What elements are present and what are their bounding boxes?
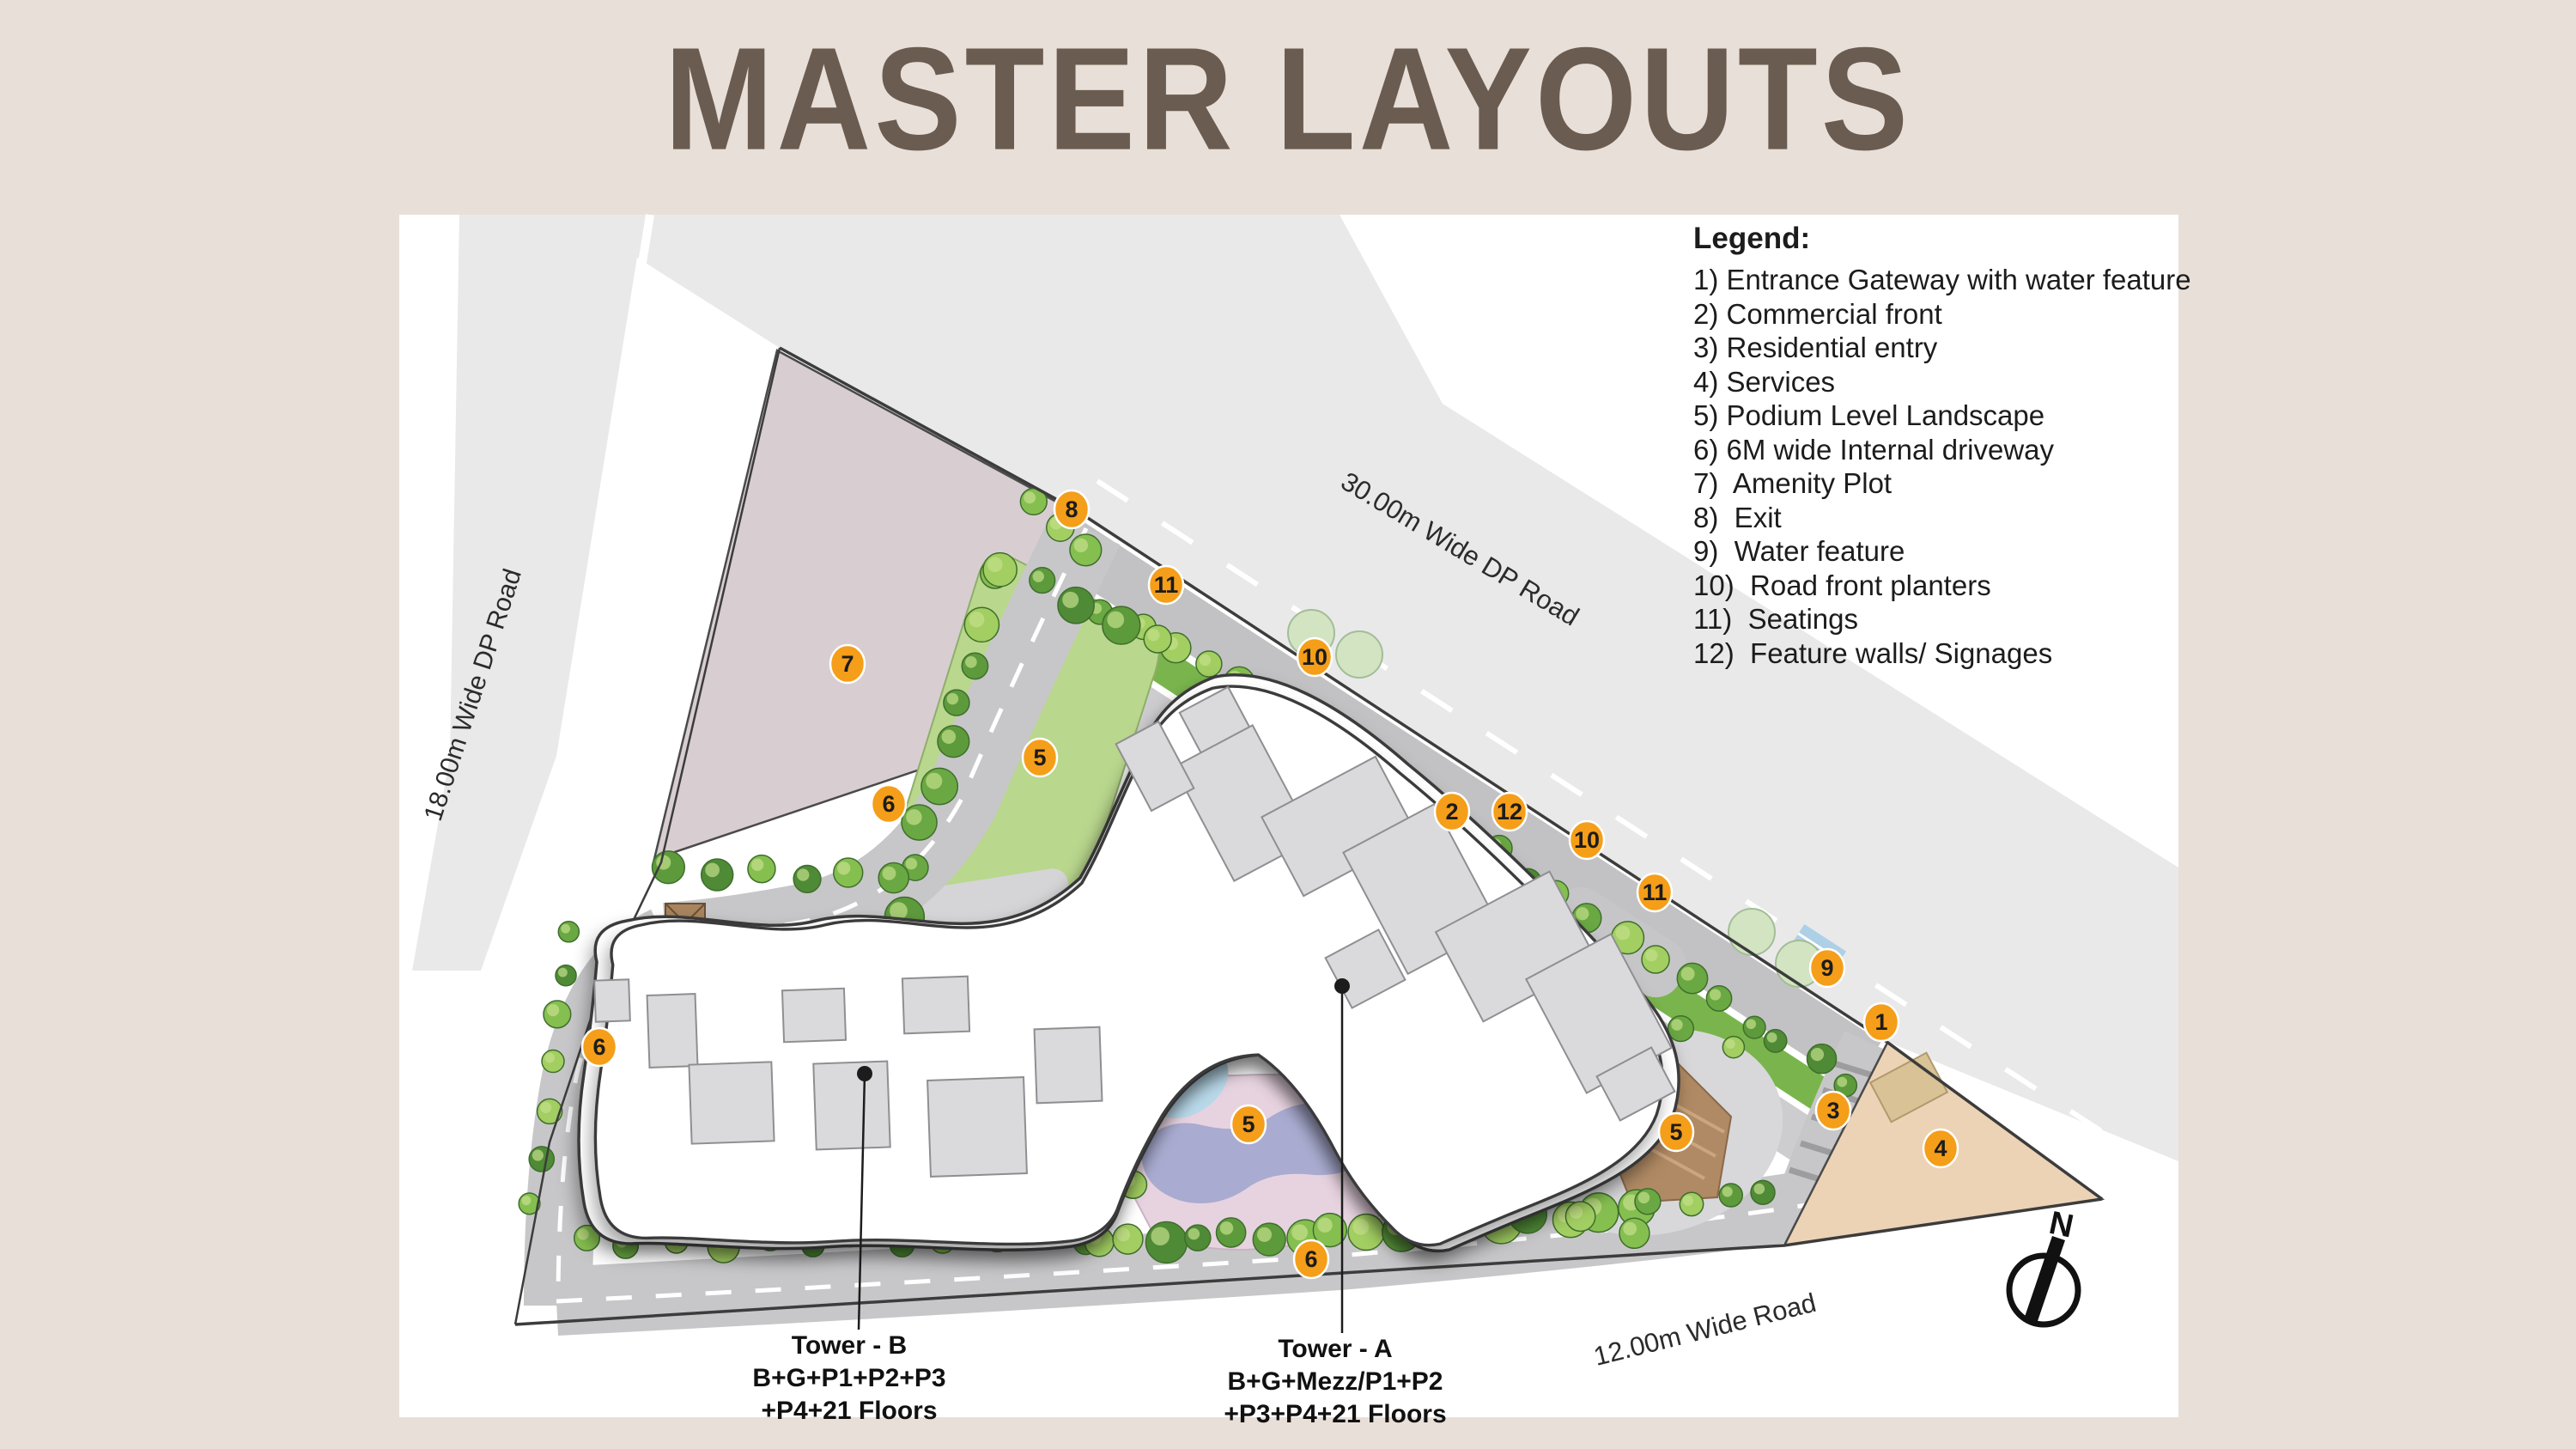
building-wing bbox=[927, 1077, 1027, 1177]
plan-marker-number: 11 bbox=[1643, 880, 1668, 905]
tower-a-floors-1: B+G+Mezz/P1+P2 bbox=[1189, 1366, 1481, 1398]
tower-a-name: Tower - A bbox=[1189, 1333, 1481, 1366]
legend-item-11: 11) Seatings bbox=[1693, 602, 2191, 636]
tree bbox=[902, 805, 937, 840]
tower-a-label: Tower - A B+G+Mezz/P1+P2 +P3+P4+21 Floor… bbox=[1189, 1333, 1481, 1431]
plan-marker-number: 5 bbox=[1033, 745, 1046, 770]
plan-marker-5: 5 bbox=[1023, 739, 1057, 776]
tree bbox=[1565, 1202, 1595, 1231]
tower-b-name: Tower - B bbox=[712, 1330, 987, 1362]
legend-item-9: 9) Water feature bbox=[1693, 534, 2191, 569]
tower-a-floors-2: +P3+P4+21 Floors bbox=[1189, 1398, 1481, 1431]
plan-marker-number: 5 bbox=[1242, 1111, 1255, 1137]
tree bbox=[944, 690, 969, 715]
plan-marker-6: 6 bbox=[872, 785, 906, 823]
building-wing bbox=[813, 1062, 890, 1150]
legend-item-2: 2) Commercial front bbox=[1693, 297, 2191, 332]
tree bbox=[921, 768, 957, 804]
plan-marker-number: 12 bbox=[1497, 799, 1522, 825]
tree bbox=[1751, 1180, 1775, 1204]
building-wing bbox=[594, 979, 630, 1021]
plan-marker-number: 10 bbox=[1302, 644, 1327, 670]
plan-marker-3: 3 bbox=[1816, 1092, 1850, 1129]
plan-marker-10: 10 bbox=[1570, 821, 1604, 859]
plan-marker-number: 11 bbox=[1154, 572, 1179, 598]
tree bbox=[1070, 534, 1102, 566]
tree bbox=[1145, 1221, 1187, 1263]
site-plan-map: 30.00m Wide DP Road 18.00m Wide DP Road … bbox=[0, 0, 2576, 1449]
tree bbox=[834, 858, 863, 887]
plan-marker-number: 6 bbox=[1304, 1246, 1317, 1272]
tree bbox=[702, 859, 733, 891]
plan-marker-6: 6 bbox=[582, 1028, 617, 1066]
legend-items: 1) Entrance Gateway with water feature2)… bbox=[1693, 263, 2191, 670]
tree bbox=[1764, 1030, 1786, 1052]
building-wing bbox=[1035, 1027, 1103, 1104]
ornamental-tree bbox=[1336, 631, 1382, 678]
plan-marker-number: 10 bbox=[1574, 827, 1600, 853]
tree bbox=[983, 553, 1017, 587]
tree bbox=[652, 851, 684, 884]
page-title: MASTER LAYOUTS bbox=[0, 15, 2576, 184]
plan-marker-11: 11 bbox=[1149, 566, 1183, 604]
tree bbox=[1253, 1223, 1285, 1256]
legend-item-3: 3) Residential entry bbox=[1693, 331, 2191, 365]
legend-item-1: 1) Entrance Gateway with water feature bbox=[1693, 263, 2191, 297]
tree bbox=[1185, 1225, 1211, 1251]
tree bbox=[1642, 946, 1669, 973]
legend-heading: Legend: bbox=[1693, 222, 2191, 256]
tree bbox=[542, 1050, 564, 1073]
plan-marker-number: 6 bbox=[592, 1034, 605, 1060]
plan-marker-7: 7 bbox=[830, 645, 865, 683]
tree bbox=[1144, 625, 1171, 653]
tree bbox=[1619, 1218, 1649, 1248]
tree bbox=[964, 607, 999, 642]
tree bbox=[1719, 1184, 1742, 1207]
tree bbox=[1196, 651, 1222, 677]
tree bbox=[1103, 606, 1140, 644]
tree bbox=[878, 863, 908, 893]
plan-marker-4: 4 bbox=[1923, 1129, 1958, 1167]
building-wing bbox=[902, 977, 969, 1034]
tower-b-label: Tower - B B+G+P1+P2+P3 +P4+21 Floors bbox=[712, 1330, 987, 1428]
tower-b-floors-1: B+G+P1+P2+P3 bbox=[712, 1362, 987, 1395]
plan-marker-number: 8 bbox=[1065, 496, 1078, 522]
tree bbox=[1677, 963, 1707, 993]
legend-item-7: 7) Amenity Plot bbox=[1693, 466, 2191, 501]
tree bbox=[938, 726, 969, 758]
plan-marker-5: 5 bbox=[1659, 1113, 1693, 1151]
building-wing bbox=[689, 1062, 774, 1143]
tower-b-floors-2: +P4+21 Floors bbox=[712, 1395, 987, 1428]
ornamental-tree bbox=[1728, 909, 1775, 955]
plan-marker-8: 8 bbox=[1054, 490, 1089, 528]
plan-marker-2: 2 bbox=[1435, 793, 1469, 831]
legend-item-5: 5) Podium Level Landscape bbox=[1693, 399, 2191, 433]
master-layout-page: { "title": "MASTER LAYOUTS", "legend": {… bbox=[0, 0, 2576, 1449]
legend-item-4: 4) Services bbox=[1693, 365, 2191, 399]
plan-marker-number: 5 bbox=[1669, 1119, 1682, 1145]
plan-marker-number: 2 bbox=[1445, 799, 1458, 825]
building-wing bbox=[782, 989, 846, 1042]
plan-marker-11: 11 bbox=[1637, 874, 1672, 911]
plan-marker-number: 3 bbox=[1826, 1098, 1839, 1123]
legend: Legend: 1) Entrance Gateway with water f… bbox=[1693, 222, 2191, 670]
building-wing bbox=[647, 994, 698, 1068]
plan-marker-number: 7 bbox=[841, 651, 854, 677]
plan-marker-number: 9 bbox=[1820, 955, 1833, 981]
legend-item-12: 12) Feature walls/ Signages bbox=[1693, 636, 2191, 671]
tree bbox=[748, 855, 775, 883]
tree bbox=[556, 965, 576, 986]
plan-marker-5: 5 bbox=[1231, 1105, 1266, 1143]
tree bbox=[1217, 1218, 1246, 1247]
tree bbox=[1706, 986, 1731, 1011]
legend-item-6: 6) 6M wide Internal driveway bbox=[1693, 433, 2191, 467]
tree bbox=[538, 1099, 562, 1123]
tree bbox=[529, 1147, 554, 1172]
tree bbox=[1668, 1016, 1694, 1042]
plan-marker-1: 1 bbox=[1864, 1003, 1899, 1041]
tree bbox=[1635, 1189, 1661, 1215]
tree bbox=[1058, 588, 1094, 624]
plan-marker-10: 10 bbox=[1297, 638, 1332, 676]
plan-marker-6: 6 bbox=[1294, 1240, 1328, 1278]
tree bbox=[793, 865, 821, 892]
tree bbox=[1348, 1215, 1384, 1251]
legend-item-10: 10) Road front planters bbox=[1693, 569, 2191, 603]
plan-marker-number: 4 bbox=[1934, 1135, 1947, 1161]
tree bbox=[1680, 1192, 1703, 1215]
tree bbox=[558, 922, 579, 942]
tree bbox=[544, 1001, 571, 1028]
tree bbox=[1030, 568, 1055, 594]
legend-item-8: 8) Exit bbox=[1693, 501, 2191, 535]
tree bbox=[962, 653, 987, 679]
tree bbox=[1743, 1016, 1765, 1038]
plan-marker-9: 9 bbox=[1810, 949, 1844, 987]
plan-marker-number: 1 bbox=[1874, 1009, 1887, 1035]
tree bbox=[1113, 1224, 1143, 1254]
tree bbox=[1722, 1037, 1744, 1058]
plan-marker-number: 6 bbox=[882, 791, 895, 817]
tree bbox=[1807, 1044, 1836, 1074]
plan-marker-12: 12 bbox=[1492, 793, 1527, 831]
